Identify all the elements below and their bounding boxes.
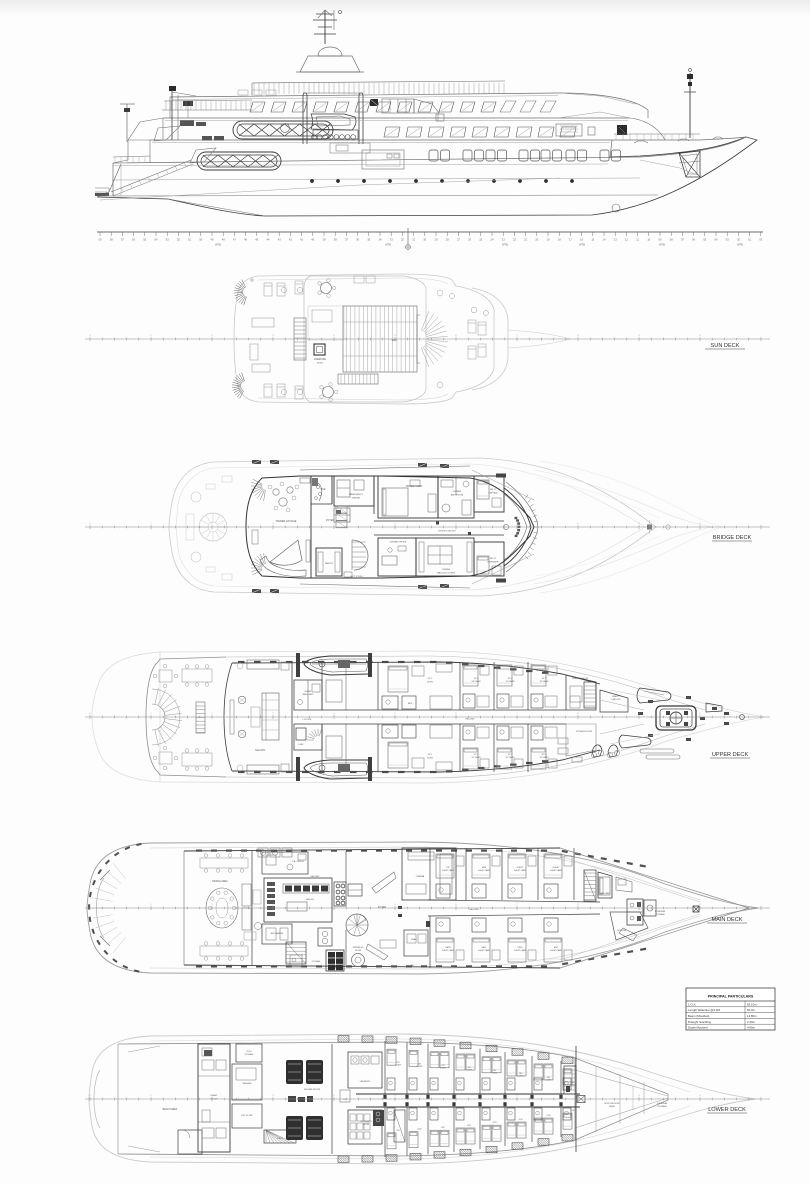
svg-text:CR7: CR7 [547,1077,550,1079]
svg-text:DRY STORE: DRY STORE [242,1115,254,1117]
svg-text:VIP CABIN: VIP CABIN [540,680,550,683]
svg-text:GUEST CABIN: GUEST CABIN [514,949,527,952]
svg-text:2.40m: 2.40m [747,1020,756,1024]
svg-text:69.10m: 69.10m [747,1002,757,1006]
svg-text:HALLWAY: HALLWAY [311,875,320,878]
svg-text:FITNESS ROOM: FITNESS ROOM [576,731,592,733]
svg-text:OWNER CABIN: OWNER CABIN [406,485,423,488]
svg-text:OWNER: OWNER [442,569,451,571]
svg-text:FOYER: FOYER [378,906,387,909]
svg-text:COLD: COLD [246,1051,252,1053]
svg-text:WTB: WTB [737,243,743,247]
svg-text:BOW THRUSTER: BOW THRUSTER [604,1103,620,1105]
svg-text:P.A. OFFICE: P.A. OFFICE [292,860,304,863]
svg-text:EXT. STUDY: EXT. STUDY [351,576,364,578]
svg-text:CR5: CR5 [493,1070,496,1072]
svg-text:13.80m: 13.80m [747,1014,757,1018]
svg-text:VIP CABIN: VIP CABIN [506,756,516,759]
svg-text:GUEST CABIN: GUEST CABIN [442,949,455,952]
svg-text:BATH+BED: BATH+BED [303,693,314,696]
svg-text:PARLOUR: PARLOUR [612,698,622,701]
svg-text:CR1: CR1 [396,1062,399,1064]
svg-text:CR16: CR16 [570,1110,574,1112]
svg-text:LAUNDRY: LAUNDRY [360,1080,371,1083]
svg-text:L.O.A.: L.O.A. [688,1002,696,1006]
svg-text:4.80m: 4.80m [747,1026,756,1030]
svg-text:BEAUTY: BEAUTY [612,695,620,698]
svg-text:Length Waterline @2.4M: Length Waterline @2.4M [688,1008,721,1012]
svg-text:CAPTAIN: CAPTAIN [489,492,498,495]
svg-text:BAR: BAR [321,488,326,491]
svg-text:CR13: CR13 [492,1122,496,1124]
svg-text:BRIDGE DECK: BRIDGE DECK [713,535,752,541]
svg-text:HALLWAY: HALLWAY [465,718,475,721]
svg-text:CR10: CR10 [417,1129,421,1131]
svg-text:DRESSING ROOM: DRESSING ROOM [572,678,588,680]
svg-text:LND: LND [410,965,415,967]
svg-text:ELEV: ELEV [299,744,305,746]
svg-text:GUEST: GUEST [517,867,525,869]
svg-text:UPPER DECK: UPPER DECK [712,752,749,758]
svg-text:2-CREW: 2-CREW [518,1075,525,1077]
svg-text:FOREPEAK: FOREPEAK [655,910,666,913]
svg-text:CR2: CR2 [418,1063,421,1065]
svg-text:2-CREW: 2-CREW [466,1070,473,1072]
svg-text:GALLEY: GALLEY [306,898,315,901]
svg-text:ANTICHAMBER: ANTICHAMBER [271,932,284,935]
svg-text:BR 11: BR 11 [490,489,496,491]
svg-text:2-CREW: 2-CREW [492,1072,499,1074]
svg-text:PANTRY: PANTRY [325,562,334,565]
svg-text:GUEST CABIN: GUEST CABIN [478,949,491,952]
svg-text:AREA: AREA [317,362,323,365]
svg-text:EXERCISE: EXERCISE [314,359,326,361]
svg-text:SUITE: SUITE [427,682,434,684]
svg-text:WTB: WTB [215,243,221,247]
svg-text:CR14: CR14 [518,1119,522,1121]
svg-text:Depth Moulded: Depth Moulded [688,1026,708,1030]
svg-text:CR15: CR15 [546,1115,550,1117]
svg-text:2-CREW: 2-CREW [546,1079,553,1081]
svg-text:STORAGE: STORAGE [657,1105,667,1108]
svg-text:OWNER OFFICE: OWNER OFFICE [389,542,407,544]
svg-text:FOREPEAK: FOREPEAK [657,1102,668,1105]
svg-text:WTB: WTB [659,243,665,247]
svg-text:FOYER: FOYER [326,519,335,522]
svg-text:GUEST CABIN: GUEST CABIN [478,869,491,872]
svg-text:CREW MESS: CREW MESS [360,1121,372,1123]
svg-text:2-CREW: 2-CREW [417,1066,424,1068]
svg-text:2-CREW: 2-CREW [440,1067,447,1069]
svg-text:SPA: SPA [392,338,397,342]
svg-text:SUN DECK: SUN DECK [711,343,740,349]
svg-text:VIP CABIN: VIP CABIN [540,756,550,759]
svg-text:STORAGE: STORAGE [312,960,322,963]
svg-text:BREEZE WAY: BREEZE WAY [537,669,549,672]
svg-text:VIP CABIN: VIP CABIN [472,680,482,683]
svg-text:GUEST: GUEST [553,867,561,869]
svg-text:GUEST: GUEST [304,691,312,693]
svg-text:60.0m: 60.0m [747,1008,756,1012]
svg-text:ROOM: ROOM [355,950,361,952]
svg-text:CR9: CR9 [396,1130,399,1132]
svg-text:WALK-IN CLOSET: WALK-IN CLOSET [437,572,456,575]
svg-text:CR6: CR6 [519,1073,522,1075]
svg-text:PASSAGE: PASSAGE [243,1082,253,1085]
svg-text:CR4: CR4 [467,1067,470,1069]
svg-text:CR3: CR3 [441,1065,444,1067]
svg-text:AREA: AREA [609,1105,615,1108]
svg-text:2-CREW: 2-CREW [395,1065,402,1067]
svg-text:DINING AREA: DINING AREA [212,880,228,883]
svg-text:SUITE: SUITE [427,758,434,760]
svg-text:VIP CABIN: VIP CABIN [472,756,482,759]
svg-text:SPRINKLER: SPRINKLER [353,947,364,949]
svg-text:OWNER LOUNGE: OWNER LOUNGE [276,520,297,523]
svg-text:CR12: CR12 [467,1125,471,1127]
svg-text:STAIRS: STAIRS [277,1137,284,1140]
svg-text:STORAGE: STORAGE [245,1053,255,1056]
svg-text:HVAC: HVAC [411,938,417,941]
svg-text:ENGINE ROOM: ENGINE ROOM [304,1089,320,1091]
svg-text:EMERGENCY: EMERGENCY [349,494,364,496]
svg-text:Draught Scantling: Draught Scantling [688,1020,711,1024]
svg-text:WTB: WTB [502,243,508,247]
svg-text:MED: MED [482,947,487,949]
svg-text:OWNER'S GALLERY: OWNER'S GALLERY [438,530,457,533]
svg-text:STORAGE: STORAGE [655,913,665,916]
svg-text:HALLWAY: HALLWAY [469,908,479,911]
svg-text:LOWER DECK: LOWER DECK [708,1107,746,1113]
svg-text:GUEST CABIN: GUEST CABIN [550,869,563,872]
svg-text:GUEST CABIN: GUEST CABIN [514,869,527,872]
svg-text:GUEST CABIN: GUEST CABIN [442,869,455,872]
svg-text:GATE: GATE [445,946,451,949]
svg-text:ENGINEER: ENGINEER [488,562,499,564]
svg-text:BATHROOM: BATHROOM [451,494,464,497]
svg-text:L-FOYER: L-FOYER [303,719,312,721]
svg-text:GUEST CABIN: GUEST CABIN [550,949,563,952]
svg-text:CR11: CR11 [441,1127,445,1129]
svg-text:SALOON: SALOON [255,749,265,752]
svg-text:BEACH AREA: BEACH AREA [163,1108,178,1111]
svg-text:WTB: WTB [385,243,391,247]
svg-text:GENSET: GENSET [352,498,362,500]
svg-text:Beam (Moulded): Beam (Moulded) [688,1014,709,1018]
svg-text:BR 12: BR 12 [490,558,497,560]
svg-text:VING: VING [518,947,523,949]
svg-text:MINI: MINI [482,867,487,869]
svg-text:OWNER: OWNER [453,491,462,493]
svg-text:WTB: WTB [579,243,585,247]
svg-text:PRINCIPAL PARTICULARS: PRINCIPAL PARTICULARS [708,995,754,999]
svg-text:MAIN DECK: MAIN DECK [711,917,742,923]
svg-text:CINEMA: CINEMA [416,875,425,878]
svg-text:VIP CABIN: VIP CABIN [506,680,516,683]
